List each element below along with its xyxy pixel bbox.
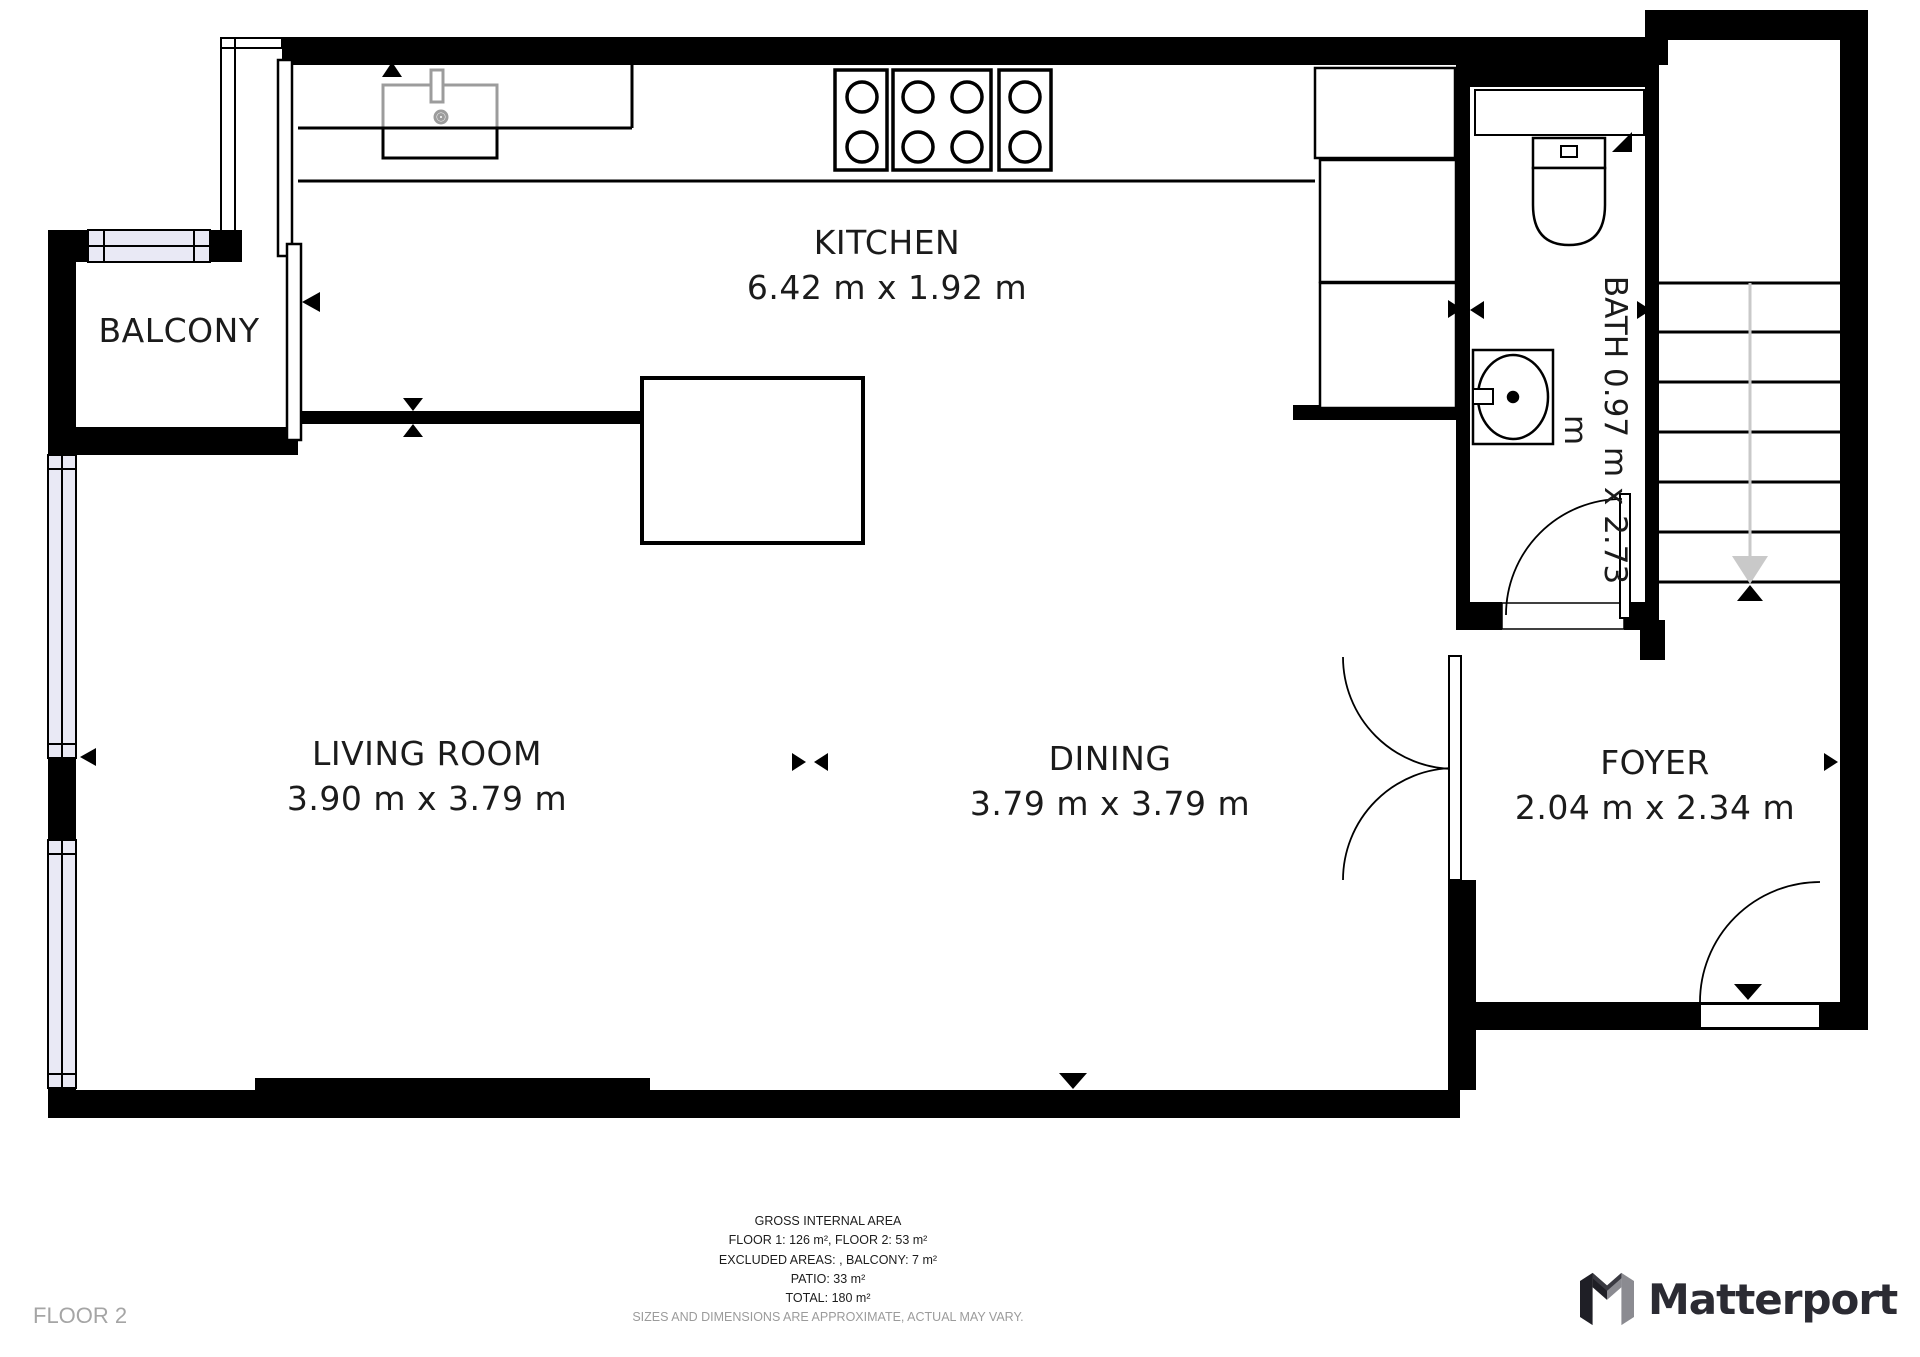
area-summary: GROSS INTERNAL AREA FLOOR 1: 126 m², FLO… (632, 1212, 1023, 1328)
stove (835, 70, 1051, 170)
matterport-logo-text: Matterport (1648, 1275, 1897, 1324)
area-summary-excluded: EXCLUDED AREAS: , BALCONY: 7 m² (632, 1251, 1023, 1270)
matterport-logo-icon (1580, 1270, 1634, 1328)
matterport-branding: Matterport (1580, 1270, 1897, 1328)
room-label-balcony: BALCONY (19, 308, 339, 353)
kitchen-island (642, 378, 863, 543)
living-room-dims: 3.90 m x 3.79 m (177, 776, 677, 821)
kitchen-sink (383, 70, 497, 128)
sliding-door (278, 60, 301, 440)
bath-name: BATH (1597, 276, 1633, 358)
cabinets (1315, 68, 1456, 408)
foyer-dims: 2.04 m x 2.34 m (1450, 785, 1860, 830)
balcony-railing (221, 38, 282, 232)
floor-plan-drawing (0, 0, 1920, 1357)
bath-shelf (1475, 90, 1644, 135)
area-summary-total: TOTAL: 180 m² (632, 1289, 1023, 1308)
room-label-foyer: FOYER 2.04 m x 2.34 m (1450, 740, 1860, 830)
dining-name: DINING (860, 736, 1360, 781)
bath-dims: 0.97 m x 2.73 m (1557, 368, 1633, 584)
room-label-dining: DINING 3.79 m x 3.79 m (860, 736, 1360, 826)
floorplan-page: KITCHEN 6.42 m x 1.92 m LIVING ROOM 3.90… (0, 0, 1920, 1357)
area-summary-patio: PATIO: 33 m² (632, 1270, 1023, 1289)
room-label-living-room: LIVING ROOM 3.90 m x 3.79 m (177, 731, 677, 821)
dishwasher (383, 128, 497, 158)
living-room-name: LIVING ROOM (177, 731, 677, 776)
area-summary-title: GROSS INTERNAL AREA (632, 1212, 1023, 1231)
bath-sink (1473, 350, 1553, 444)
balcony-name: BALCONY (19, 308, 339, 353)
area-summary-floors: FLOOR 1: 126 m², FLOOR 2: 53 m² (632, 1231, 1023, 1250)
kitchen-dims: 6.42 m x 1.92 m (637, 265, 1137, 310)
kitchen-name: KITCHEN (637, 220, 1137, 265)
room-label-kitchen: KITCHEN 6.42 m x 1.92 m (637, 220, 1137, 310)
area-disclaimer: SIZES AND DIMENSIONS ARE APPROXIMATE, AC… (632, 1308, 1023, 1327)
foyer-name: FOYER (1450, 740, 1860, 785)
entry-door (1700, 882, 1820, 1028)
room-label-bath: BATH 0.97 m x 2.73 m (1555, 265, 1635, 595)
double-door (1343, 656, 1461, 880)
dining-dims: 3.79 m x 3.79 m (860, 781, 1360, 826)
toilet (1533, 138, 1605, 245)
floor-label: FLOOR 2 (33, 1303, 127, 1329)
